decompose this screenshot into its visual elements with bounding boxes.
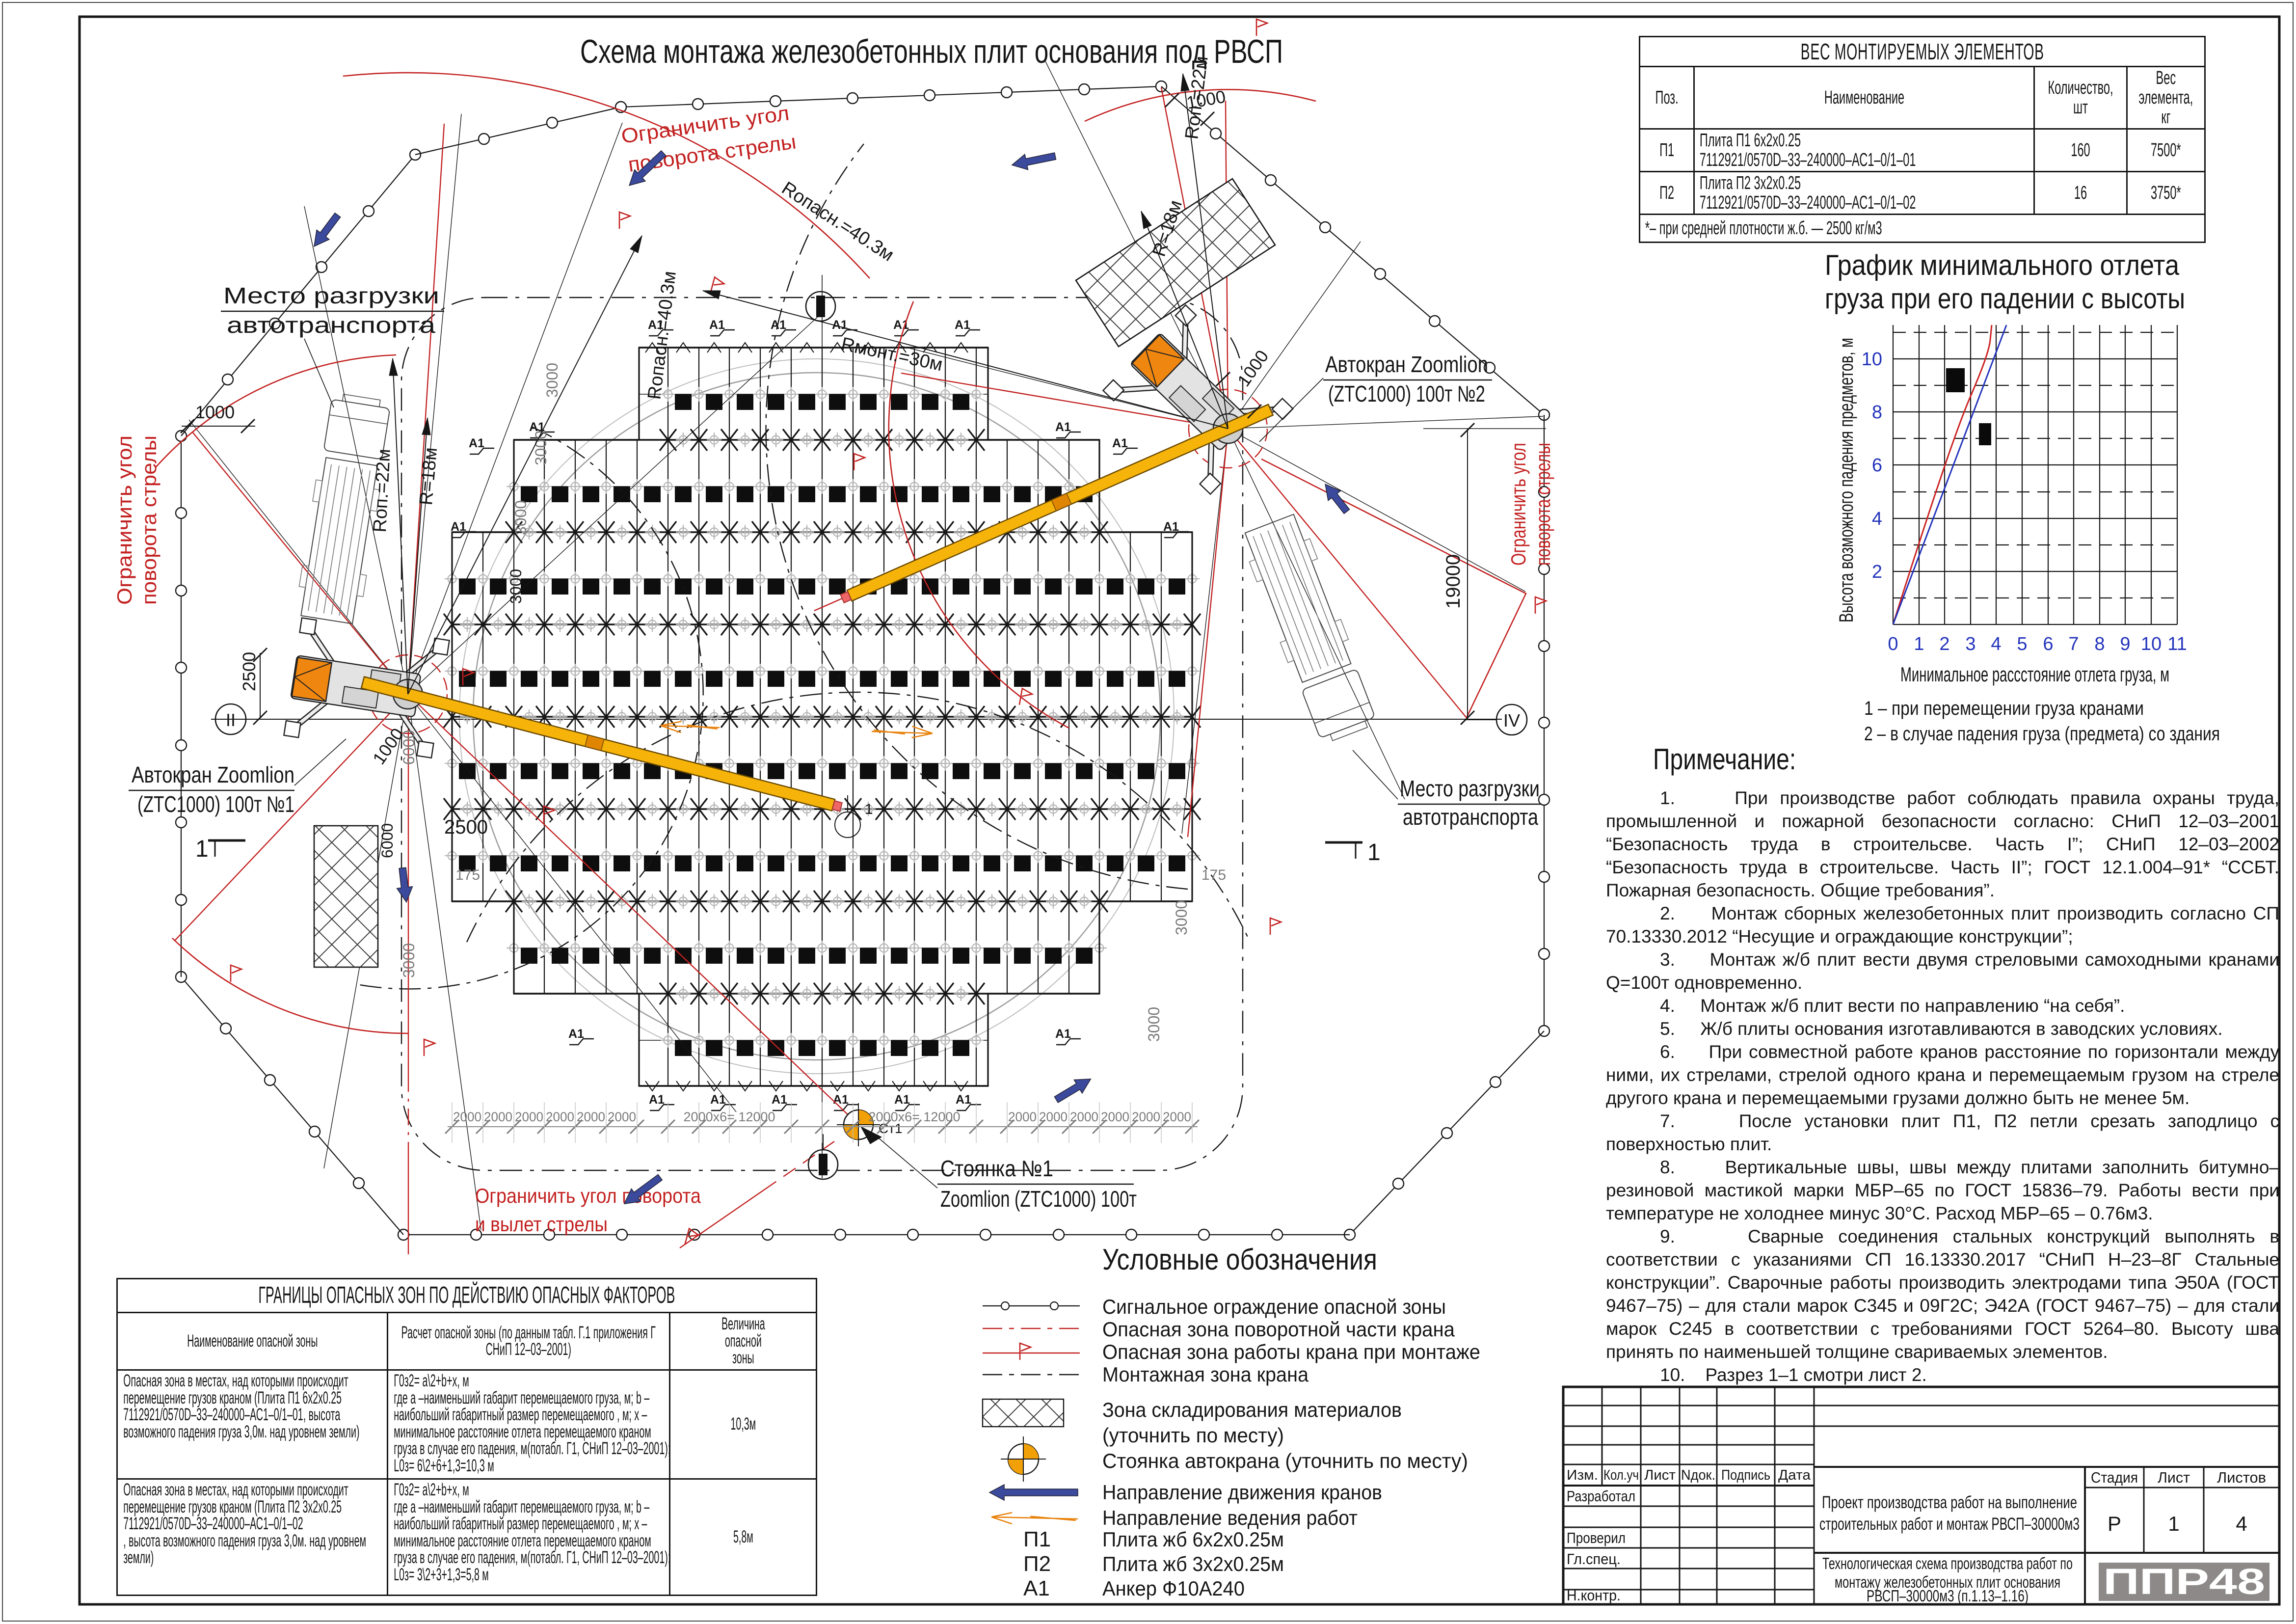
svg-text:Место разгрузки: Место разгрузки [1400,776,1540,801]
svg-text:Место разгрузки: Место разгрузки [223,283,439,308]
svg-text:3000: 3000 [543,363,561,398]
svg-text:П2: П2 [1023,1552,1051,1576]
svg-text:Р: Р [2108,1512,2121,1535]
svg-text:Автокран Zoomlion: Автокран Zoomlion [132,762,294,787]
svg-text:3000: 3000 [512,500,530,535]
svg-text:РВСП–30000м3 (п.1.13–1.16): РВСП–30000м3 (п.1.13–1.16) [1867,1587,2029,1605]
svg-text:2000: 2000 [1008,1110,1037,1124]
svg-text:(ZTC1000) 100т №1: (ZTC1000) 100т №1 [137,791,294,817]
svg-text:2: 2 [1872,562,1882,582]
svg-text:2000: 2000 [1039,1110,1068,1124]
svg-text:Проект производства работ на в: Проект производства работ на выполнение [1822,1493,2077,1512]
svg-text:Направление движения кранов: Направление движения кранов [1102,1481,1382,1504]
svg-text:груза при его падении с высоты: груза при его падении с высоты [1825,283,2185,315]
svg-text:Зона складирования материалов: Зона складирования материалов [1102,1398,1402,1421]
svg-text:(ZTC1000) 100т №2: (ZTC1000) 100т №2 [1328,381,1485,406]
svg-text:Монтажная зона крана: Монтажная зона крана [1102,1363,1309,1386]
svg-text:3000: 3000 [507,569,525,604]
svg-text:3000: 3000 [532,431,550,465]
svg-text:1 – при перемещении груза кран: 1 – при перемещении груза кранами [1864,698,2144,719]
svg-text:19000: 19000 [1442,554,1464,609]
svg-text:2000: 2000 [608,1110,636,1124]
svg-text:Лист: Лист [2158,1469,2190,1486]
svg-text:6: 6 [2043,634,2053,654]
svg-text:0: 0 [1888,634,1898,654]
svg-text:1: 1 [195,836,209,862]
svg-text:Изм.: Изм. [1567,1467,1598,1483]
svg-text:II: II [226,710,236,730]
svg-text:Проверил: Проверил [1567,1529,1626,1546]
svg-text:Ограничить угол поворота: Ограничить угол поворота [475,1184,701,1207]
svg-text:2000: 2000 [484,1110,512,1124]
svg-text:Стоянка №1: Стоянка №1 [940,1156,1053,1181]
svg-text:IV: IV [1503,710,1520,731]
svg-text:1: 1 [1367,839,1381,866]
svg-text:8: 8 [1872,402,1882,423]
svg-text:2000: 2000 [1101,1110,1129,1124]
svg-text:Zoomlion (ZTC1000) 100т: Zoomlion (ZTC1000) 100т [940,1186,1137,1212]
svg-text:Листов: Листов [2217,1469,2266,1486]
svg-text:9: 9 [2120,634,2130,654]
svg-text:2 – в случае падения груза (пр: 2 – в случае падения груза (предмета) со… [1864,723,2220,745]
svg-text:ППР48: ППР48 [2103,1561,2265,1602]
svg-text:Минимальное рассстояние отлета: Минимальное рассстояние отлета груза, м [1900,663,2169,686]
svg-text:175: 175 [1201,867,1226,883]
svg-text:3: 3 [1965,634,1976,654]
svg-text:2000х6= 12000: 2000х6= 12000 [684,1110,775,1124]
svg-text:Плита жб 6х2х0.25м: Плита жб 6х2х0.25м [1102,1528,1284,1551]
svg-text:автотранспорта: автотранспорта [227,312,436,338]
svg-text:Кол.уч: Кол.уч [1603,1467,1639,1483]
svg-text:поворота стрелы: поворота стрелы [1531,443,1554,566]
svg-text:Ограничить угол: Ограничить угол [113,435,136,605]
svg-text:10: 10 [2141,634,2162,654]
svg-text:2000: 2000 [453,1110,481,1124]
svg-text:Лист: Лист [1644,1467,1676,1483]
svg-text:2000: 2000 [1163,1110,1191,1124]
svg-text:Подпись: Подпись [1721,1467,1770,1483]
svg-text:Дата: Дата [1778,1467,1811,1483]
svg-text:Высота возможного падения пред: Высота возможного падения предметов, м [1836,338,1857,623]
svg-text:3000: 3000 [1173,900,1190,935]
svg-text:1000: 1000 [195,402,235,422]
svg-text:Опасная зона работы крана при: Опасная зона работы крана при монтаже [1102,1340,1480,1363]
svg-text:1: 1 [2168,1512,2179,1535]
svg-text:Опасная зона поворотной части: Опасная зона поворотной части крана [1102,1318,1455,1341]
svg-text:1: 1 [865,801,873,817]
svg-text:Технологическая схема производ: Технологическая схема производства работ… [1822,1554,2073,1572]
svg-text:11: 11 [2167,634,2187,654]
svg-text:Nдок.: Nдок. [1681,1467,1715,1483]
svg-text:4: 4 [1872,509,1882,529]
svg-text:Плита жб 3х2х0.25м: Плита жб 3х2х0.25м [1102,1552,1284,1575]
svg-text:2000: 2000 [1070,1110,1098,1124]
svg-text:Стадия: Стадия [2091,1469,2138,1486]
svg-text:10: 10 [1862,349,1882,370]
svg-text:2500: 2500 [239,652,259,691]
svg-text:строительных работ и монтаж РВ: строительных работ и монтаж РВСП–30000м3 [1819,1515,2080,1534]
svg-text:2000х6= 12000: 2000х6= 12000 [869,1110,961,1124]
svg-text:4: 4 [2236,1512,2247,1535]
svg-text:1: 1 [1914,634,1924,654]
svg-text:(уточнить по месту): (уточнить по месту) [1102,1424,1284,1447]
svg-text:автотранспорта: автотранспорта [1403,804,1538,830]
svg-text:6: 6 [1872,455,1882,476]
svg-text:2000: 2000 [515,1110,543,1124]
svg-text:2: 2 [1939,634,1949,654]
svg-text:Rоп.=22м: Rоп.=22м [370,448,395,533]
svg-text:поворота стрелы: поворота стрелы [137,435,160,605]
svg-text:Н.контр.: Н.контр. [1567,1587,1621,1604]
svg-text:Сигнальное ограждение опасной: Сигнальное ограждение опасной зоны [1102,1295,1446,1318]
svg-text:2000: 2000 [1132,1110,1160,1124]
svg-text:3000: 3000 [1145,1007,1163,1042]
svg-text:Условные обозначения: Условные обозначения [1102,1243,1377,1276]
svg-text:5: 5 [2017,634,2027,654]
svg-text:Ограничить угол: Ограничить угол [1507,443,1530,566]
svg-text:Направление ведения работ: Направление ведения работ [1102,1506,1358,1529]
svg-text:8: 8 [2094,634,2105,654]
svg-text:Стоянка автокрана (уточнить по: Стоянка автокрана (уточнить по месту) [1102,1449,1468,1472]
svg-text:Автокран Zoomlion: Автокран Zoomlion [1325,352,1488,377]
svg-text:Схема монтажа железобетонных п: Схема монтажа железобетонных плит основа… [580,33,1283,70]
svg-text:Гл.спец.: Гл.спец. [1567,1550,1621,1568]
svg-text:П1: П1 [1023,1527,1051,1551]
svg-text:6000: 6000 [378,823,396,858]
svg-text:2000: 2000 [577,1110,605,1124]
svg-text:2500: 2500 [444,816,488,838]
svg-text:175: 175 [455,867,480,883]
svg-text:График минимального отлета: График минимального отлета [1825,249,2180,281]
svg-text:3000: 3000 [400,943,418,978]
svg-text:и вылет стрелы: и вылет стрелы [475,1213,608,1236]
svg-text:2000: 2000 [546,1110,574,1124]
svg-text:7: 7 [2068,634,2079,654]
svg-text:4: 4 [1991,634,2001,654]
svg-text:А1: А1 [1023,1576,1050,1600]
svg-text:Разработал: Разработал [1567,1488,1635,1505]
svg-text:Анкер Ф10А240: Анкер Ф10А240 [1102,1577,1245,1600]
